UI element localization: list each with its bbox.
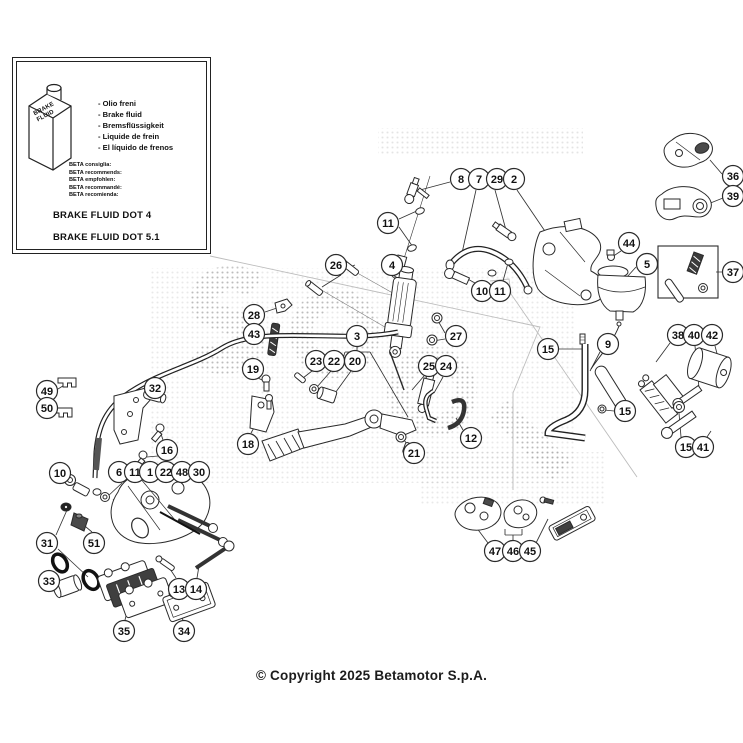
svg-text:50: 50 — [41, 403, 53, 415]
fluid-name: - Olio freni — [98, 98, 173, 109]
callout-35: 35 — [114, 621, 135, 642]
svg-text:38: 38 — [672, 330, 684, 342]
fluid-name: - Liquide de frein — [98, 131, 173, 142]
svg-text:16: 16 — [161, 445, 173, 457]
callout-22: 22 — [324, 351, 345, 372]
svg-text:29: 29 — [491, 174, 503, 186]
beta-recommendation: BETA recomienda: — [69, 192, 122, 200]
svg-text:11: 11 — [382, 218, 394, 230]
svg-text:51: 51 — [88, 538, 100, 550]
beta-recommendation: BETA consiglia: — [69, 162, 122, 170]
svg-text:24: 24 — [440, 361, 453, 373]
svg-text:18: 18 — [242, 439, 254, 451]
callout-12: 12 — [461, 428, 482, 449]
callout-10: 10 — [50, 463, 71, 484]
dot51-spec: BRAKE FLUID DOT 5.1 — [53, 232, 160, 243]
svg-text:3: 3 — [354, 331, 360, 343]
callout-44: 44 — [619, 233, 640, 254]
svg-text:6: 6 — [116, 467, 122, 479]
svg-text:45: 45 — [524, 546, 536, 558]
callout-15: 15 — [615, 401, 636, 422]
svg-text:33: 33 — [43, 576, 55, 588]
part-front-caliper — [533, 218, 606, 304]
halftone-watermark — [150, 128, 605, 504]
callout-31: 31 — [37, 533, 58, 554]
callout-19: 19 — [243, 359, 264, 380]
callout-14: 14 — [186, 579, 207, 600]
callout-33: 33 — [39, 571, 60, 592]
callout-24: 24 — [436, 356, 457, 377]
svg-text:23: 23 — [310, 356, 322, 368]
callout-21: 21 — [404, 443, 425, 464]
callout-27: 27 — [446, 326, 467, 347]
callout-37: 37 — [723, 262, 743, 283]
svg-text:34: 34 — [178, 626, 191, 638]
svg-text:25: 25 — [423, 361, 435, 373]
svg-text:28: 28 — [248, 310, 260, 322]
svg-text:15: 15 — [619, 406, 631, 418]
callout-43: 43 — [244, 324, 265, 345]
svg-text:10: 10 — [476, 286, 488, 298]
svg-text:1: 1 — [147, 467, 153, 479]
callout-18: 18 — [238, 434, 259, 455]
callout-51: 51 — [84, 533, 105, 554]
svg-text:21: 21 — [408, 448, 420, 460]
svg-text:40: 40 — [688, 330, 700, 342]
svg-text:35: 35 — [118, 626, 130, 638]
callout-50: 50 — [37, 398, 58, 419]
svg-text:44: 44 — [623, 238, 636, 250]
svg-text:46: 46 — [507, 546, 519, 558]
svg-text:12: 12 — [465, 433, 477, 445]
svg-text:9: 9 — [605, 339, 611, 351]
copyright-line: © Copyright 2025 Betamotor S.p.A. — [0, 668, 743, 683]
callout-36: 36 — [723, 166, 743, 187]
svg-text:20: 20 — [349, 356, 361, 368]
svg-text:8: 8 — [458, 174, 464, 186]
svg-text:43: 43 — [248, 329, 260, 341]
beta-recommendation: BETA recommandé: — [69, 185, 122, 193]
callout-30: 30 — [189, 462, 210, 483]
svg-text:15: 15 — [680, 442, 692, 454]
fluid-name: - Bremsflüssigkeit — [98, 120, 173, 131]
callout-2: 2 — [504, 169, 525, 190]
callout-41: 41 — [693, 437, 714, 458]
beta-recommendation-list: BETA consiglia: BETA recommends: BETA em… — [69, 162, 122, 200]
brake-fluid-info-box: BRAKE FLUID - Olio freni - Brake fluid -… — [12, 57, 211, 254]
callout-34: 34 — [174, 621, 195, 642]
callout-9: 9 — [598, 334, 619, 355]
svg-text:14: 14 — [190, 584, 203, 596]
svg-text:36: 36 — [727, 171, 739, 183]
part-repair-kit-box — [658, 246, 718, 303]
beta-recommendation: BETA recommends: — [69, 170, 122, 178]
svg-text:47: 47 — [489, 546, 501, 558]
beta-recommendation: BETA empfohlen: — [69, 177, 122, 185]
svg-text:4: 4 — [389, 260, 396, 272]
callout-39: 39 — [723, 186, 743, 207]
svg-text:11: 11 — [494, 286, 506, 298]
svg-text:7: 7 — [476, 174, 482, 186]
callout-28: 28 — [244, 305, 265, 326]
callout-11: 11 — [490, 281, 511, 302]
part-lever-clamp — [664, 133, 712, 167]
callout-26: 26 — [326, 255, 347, 276]
part-lever-perch — [656, 187, 712, 220]
svg-text:37: 37 — [727, 267, 739, 279]
svg-text:22: 22 — [328, 356, 340, 368]
dot4-spec: BRAKE FLUID DOT 4 — [53, 210, 151, 221]
svg-text:49: 49 — [41, 386, 53, 398]
svg-text:2: 2 — [511, 174, 517, 186]
callout-11: 11 — [378, 213, 399, 234]
fluid-name-list: - Olio freni - Brake fluid - Bremsflüssi… — [98, 98, 173, 153]
svg-text:30: 30 — [193, 467, 205, 479]
fluid-name: - Brake fluid — [98, 109, 173, 120]
svg-text:15: 15 — [542, 344, 554, 356]
part-chain-guide-and-roller — [634, 346, 734, 440]
callout-15: 15 — [538, 339, 559, 360]
svg-text:13: 13 — [173, 584, 185, 596]
svg-text:42: 42 — [706, 330, 718, 342]
svg-text:26: 26 — [330, 260, 342, 272]
callout-20: 20 — [345, 351, 366, 372]
svg-text:22: 22 — [160, 467, 172, 479]
callout-4: 4 — [382, 255, 403, 276]
callout-3: 3 — [347, 326, 368, 347]
svg-text:48: 48 — [176, 467, 188, 479]
svg-text:32: 32 — [149, 383, 161, 395]
svg-text:27: 27 — [450, 331, 462, 343]
svg-text:31: 31 — [41, 538, 53, 550]
parts-diagram-page: 8729236391144264537101128433273840421592… — [0, 0, 743, 743]
callout-32: 32 — [145, 378, 166, 399]
callout-16: 16 — [157, 440, 178, 461]
svg-text:5: 5 — [644, 259, 650, 271]
fluid-name: - El líquido de frenos — [98, 142, 173, 153]
callout-5: 5 — [637, 254, 658, 275]
svg-text:19: 19 — [247, 364, 259, 376]
callout-42: 42 — [702, 325, 723, 346]
svg-text:39: 39 — [727, 191, 739, 203]
callout-45: 45 — [520, 541, 541, 562]
svg-text:41: 41 — [697, 442, 709, 454]
svg-text:10: 10 — [54, 468, 66, 480]
